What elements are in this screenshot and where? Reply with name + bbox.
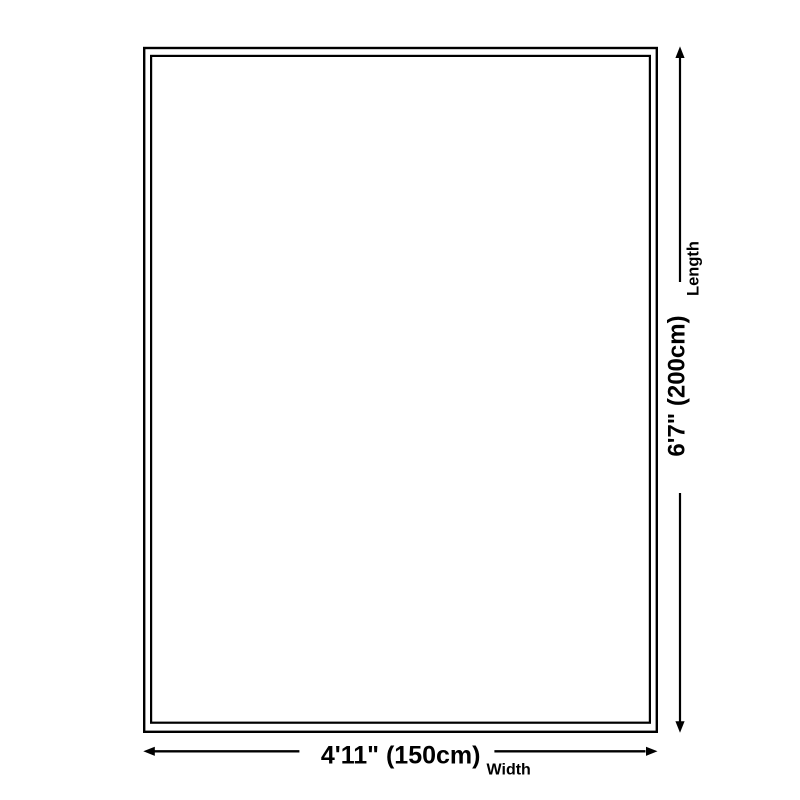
svg-text:6'7" (200cm): 6'7" (200cm) [664,315,691,456]
svg-text:Length: Length [685,241,703,296]
svg-text:4'11" (150cm): 4'11" (150cm) [321,742,481,770]
svg-text:Width: Width [487,762,531,779]
